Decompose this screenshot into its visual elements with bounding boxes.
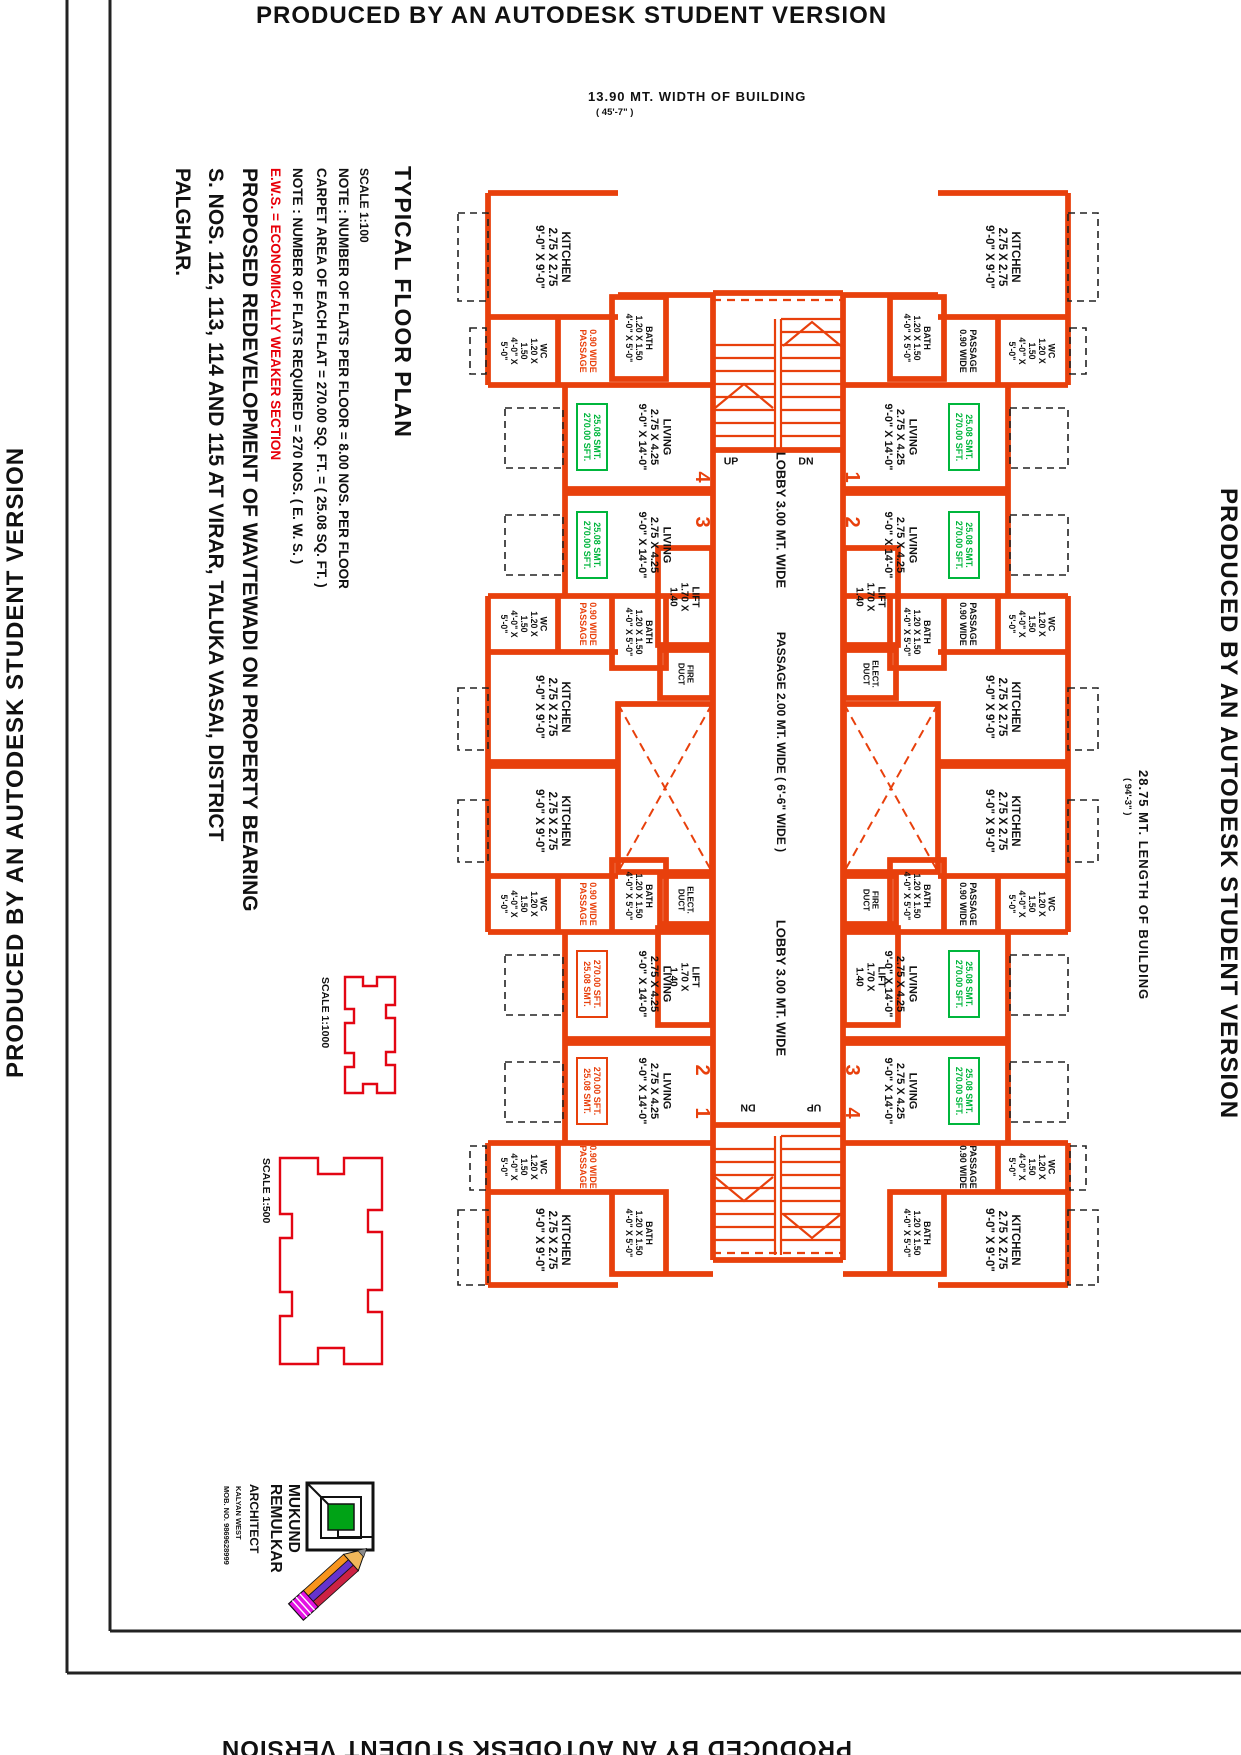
architect-phone: MOB. NO. 9869628999 (223, 1486, 231, 1565)
area-badge-green: 25.08 SMT.270.00 SFT. (954, 960, 974, 1009)
lobby-label: LOBBY 3.00 MT. WIDE (773, 452, 788, 589)
passage-label: PASSAGE0.90 WIDE (958, 329, 978, 373)
living-label: LIVING2.75 X 4.259'-0" X 14'-0" (636, 511, 673, 578)
building-length-feet: ( 94'-3" ) (1123, 778, 1133, 815)
bath-label: BATH1.20 X 1.504'-0" X 5'-0" (624, 608, 654, 657)
passage-label: 0.90 WIDEPASSAGE (578, 1145, 598, 1189)
flat-number: 2 (841, 516, 863, 527)
wc-label: WC1.20 X1.504'-0" X5'-0" (1007, 337, 1056, 364)
elect-duct-label: ELECT.DUCT (862, 660, 880, 688)
key-plan-2-scale: SCALE 1:500 (261, 1158, 272, 1223)
stair-dn-label: DN (798, 456, 813, 468)
lobby-label: LOBBY 3.00 MT. WIDE (773, 920, 788, 1057)
wc-label: WC1.20 X1.504'-0" X5'-0" (1007, 890, 1056, 917)
wc-label: WC1.20 X1.504'-0" X5'-0" (499, 890, 548, 917)
kitchen-label: KITCHEN2.75 X 2.759'-0" X 9'-0" (983, 1208, 1021, 1272)
kitchen-label: KITCHEN2.75 X 2.759'-0" X 9'-0" (533, 1208, 571, 1272)
key-plan-1-scale: SCALE 1:1000 (320, 977, 331, 1048)
living-label: LIVING2.75 X 4.259'-0" X 14'-0" (636, 950, 673, 1017)
bath-label: BATH1.20 X 1.504'-0" X 5'-0" (902, 1209, 932, 1258)
kitchen-label: KITCHEN2.75 X 2.759'-0" X 9'-0" (533, 789, 571, 853)
stair-up-label: UP (724, 456, 739, 468)
bath-label: BATH1.20 X 1.504'-0" X 5'-0" (902, 314, 932, 363)
staircase-top (713, 300, 843, 450)
drawing-scale: SCALE 1:100 (358, 168, 370, 243)
living-label: LIVING2.75 X 4.259'-0" X 14'-0" (882, 950, 919, 1017)
area-badge-green: 25.08 SMT.270.00 SFT. (954, 521, 974, 570)
bath-label: BATH1.20 X 1.504'-0" X 5'-0" (624, 872, 654, 921)
note-carpet-area: CARPET AREA OF EACH FLAT = 270.00 SQ. FT… (315, 168, 329, 588)
banner-top: PRODUCED BY AN AUTODESK STUDENT VERSION (256, 4, 887, 28)
flat-number: 3 (691, 516, 713, 527)
banner-left: PRODUCED BY AN AUTODESK STUDENT VERSION (4, 447, 28, 1078)
project-title-line2: S. NOS. 112, 113, 114 AND 115 AT VIRAR, … (205, 168, 226, 841)
kitchen-label: KITCHEN2.75 X 2.759'-0" X 9'-0" (983, 789, 1021, 853)
passage-label: PASSAGE0.90 WIDE (958, 1145, 978, 1189)
note-flats-required: NOTE : NUMBER OF FLATS REQUIRED = 270 NO… (291, 168, 305, 564)
bath-label: BATH1.20 X 1.504'-0" X 5'-0" (902, 872, 932, 921)
architect-title: ARCHITECT (248, 1484, 260, 1553)
kitchen-label: KITCHEN2.75 X 2.759'-0" X 9'-0" (983, 225, 1021, 289)
banner-right: PRODUCED BY AN AUTODESK STUDENT VERSION (1216, 488, 1240, 1119)
flat-number: 1 (841, 471, 863, 482)
key-plan-2-outline (280, 1158, 382, 1364)
passage-core-label: PASSAGE 2.00 MT. WIDE ( 6'-6" WIDE ) (774, 632, 788, 852)
area-badge-green: 25.08 SMT.270.00 SFT. (954, 413, 974, 462)
note-flats-per-floor: NOTE : NUMBER OF FLATS PER FLOOR = 8.00 … (337, 168, 351, 589)
building-width-dimension: 13.90 MT. WIDTH OF BUILDING (588, 90, 806, 103)
passage-label: 0.90 WIDEPASSAGE (578, 882, 598, 926)
stair-up-label: UP (807, 1101, 822, 1113)
architect-logo (307, 1483, 373, 1550)
flat-number: 2 (691, 1064, 713, 1075)
kitchen-label: KITCHEN2.75 X 2.759'-0" X 9'-0" (533, 675, 571, 739)
living-label: LIVING2.75 X 4.259'-0" X 14'-0" (636, 403, 673, 470)
building-length-dimension: 28.75 MT. LENGTH OF BUILDING (1137, 770, 1150, 1000)
area-badge-green: 25.08 SMT.270.00 SFT. (954, 1067, 974, 1116)
wc-label: WC1.20 X1.504'-0" X5'-0" (1007, 1153, 1056, 1180)
kitchen-label: KITCHEN2.75 X 2.759'-0" X 9'-0" (533, 225, 571, 289)
drawing-title: TYPICAL FLOOR PLAN (391, 166, 414, 438)
drawing-sheet: KITCHEN2.75 X 2.759'-0" X 9'-0"WC1.20 X1… (0, 0, 1241, 1755)
project-title-line1: PROPOSED REDEVELOPMENT OF WAVTEWADI ON P… (239, 168, 260, 912)
living-label: LIVING2.75 X 4.259'-0" X 14'-0" (882, 1057, 919, 1124)
architect-name-line2: REMULKAR (268, 1484, 284, 1573)
passage-label: PASSAGE0.90 WIDE (958, 602, 978, 646)
flat-number: 1 (691, 1107, 713, 1118)
key-plan-1-outline (345, 977, 395, 1093)
flat-number: 4 (841, 1107, 863, 1119)
lift-label: LIFT1.70 X1.40 (853, 583, 886, 612)
building-width-feet: ( 45'-7" ) (596, 108, 633, 118)
banner-bottom: PRODUCED BY AN AUTODESK STUDENT VERSION (221, 1736, 852, 1755)
stair-dn-label: DN (740, 1101, 755, 1113)
wc-label: WC1.20 X1.504'-0" X5'-0" (1007, 610, 1056, 637)
architect-address: KALYAN WEST (235, 1486, 243, 1540)
wc-label: WC1.20 X1.504'-0" X5'-0" (499, 337, 548, 364)
area-badge-red: 270.00 SFT.25.08 SMT. (582, 960, 602, 1009)
wc-label: WC1.20 X1.504'-0" X5'-0" (499, 1153, 548, 1180)
flat-number: 4 (691, 471, 713, 483)
area-badge-green: 25.08 SMT.270.00 SFT. (582, 413, 602, 462)
note-ews: E.W.S. = ECONOMICALLY WEAKER SECTION (269, 168, 283, 460)
fire-duct-label: FIREDUCT (677, 663, 695, 685)
area-badge-green: 25.08 SMT.270.00 SFT. (582, 521, 602, 570)
elect-duct-label: ELECT.DUCT (677, 886, 695, 914)
area-badge-red: 270.00 SFT.25.08 SMT. (582, 1067, 602, 1116)
flat-number: 3 (841, 1064, 863, 1075)
living-label: LIVING2.75 X 4.259'-0" X 14'-0" (636, 1057, 673, 1124)
wc-label: WC1.20 X1.504'-0" X5'-0" (499, 610, 548, 637)
project-title-line3: PALGHAR. (172, 168, 193, 276)
passage-label: 0.90 WIDEPASSAGE (578, 329, 598, 373)
lift-label: LIFT1.70 X1.40 (667, 583, 700, 612)
living-label: LIVING2.75 X 4.259'-0" X 14'-0" (882, 511, 919, 578)
bath-label: BATH1.20 X 1.504'-0" X 5'-0" (902, 608, 932, 657)
staircase-bottom (713, 1136, 843, 1255)
fire-duct-label: FIREDUCT (862, 889, 880, 911)
passage-label: PASSAGE0.90 WIDE (958, 882, 978, 926)
passage-label: 0.90 WIDEPASSAGE (578, 602, 598, 646)
living-label: LIVING2.75 X 4.259'-0" X 14'-0" (882, 403, 919, 470)
plan-text-layer: KITCHEN2.75 X 2.759'-0" X 9'-0"WC1.20 X1… (499, 225, 1056, 1272)
kitchen-label: KITCHEN2.75 X 2.759'-0" X 9'-0" (983, 675, 1021, 739)
bath-label: BATH1.20 X 1.504'-0" X 5'-0" (624, 1209, 654, 1258)
architect-name-line1: MUKUND (286, 1484, 302, 1553)
bath-label: BATH1.20 X 1.504'-0" X 5'-0" (624, 314, 654, 363)
lift-label: LIFT1.70 X1.40 (853, 963, 886, 992)
logo-green-square (328, 1504, 354, 1530)
